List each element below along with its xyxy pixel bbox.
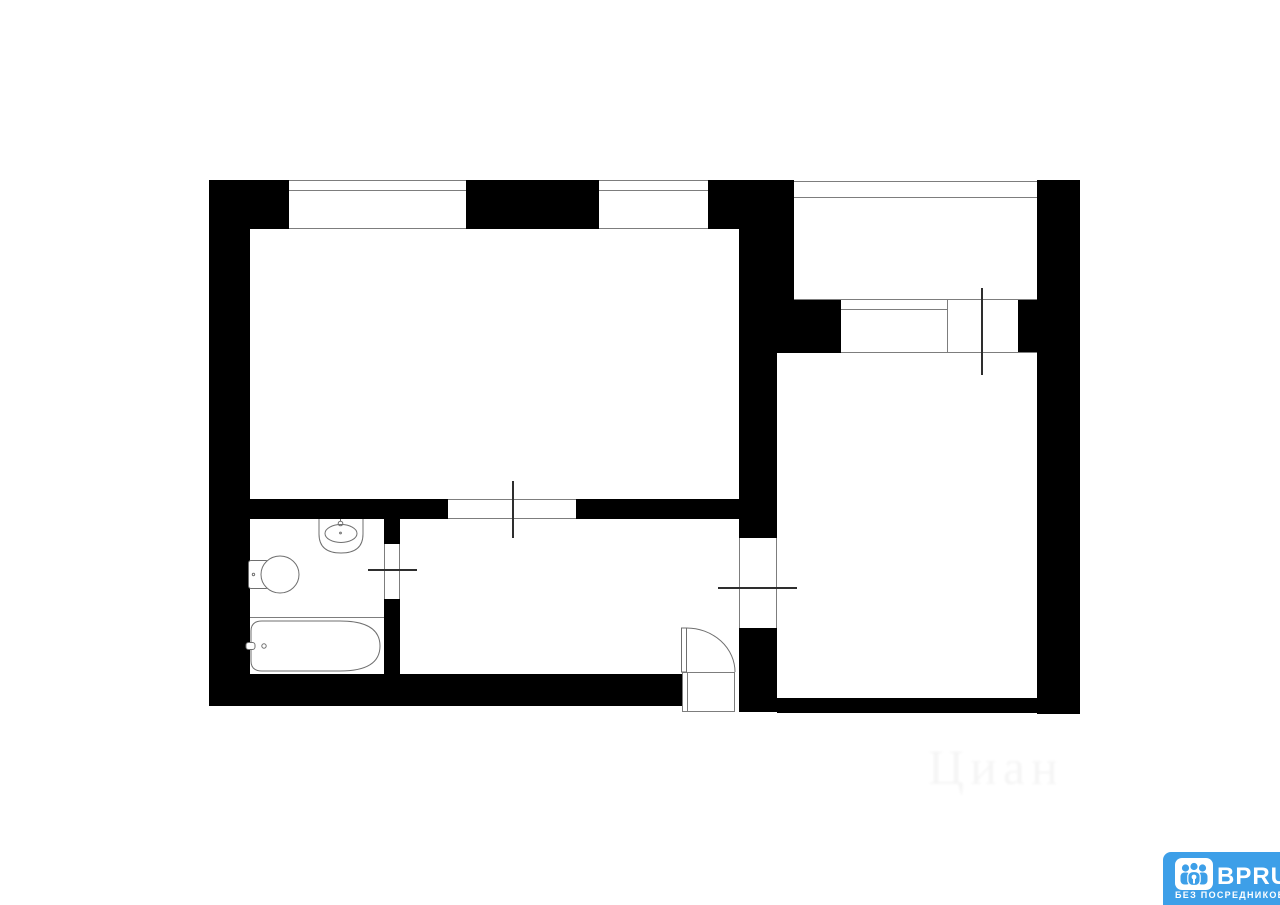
- entrance-door: [682, 628, 736, 672]
- toilet-fixture: [249, 556, 300, 593]
- bathtub-fixture: [246, 621, 380, 671]
- bathtub-faucet-icon: [246, 643, 255, 650]
- bpru-logo-badge: BPRU БЕЗ ПОСРЕДНИКОВ: [1163, 852, 1280, 905]
- door-leaf: [682, 628, 687, 672]
- floor-plan-image: Циан BPRU БЕЗ ПОСРЕДНИКОВ: [0, 0, 1280, 905]
- sink-fixture: [319, 519, 363, 553]
- bpru-tagline-text: БЕЗ ПОСРЕДНИКОВ: [1175, 890, 1280, 900]
- door-swing-arc: [687, 628, 736, 672]
- bpru-brand-text: BPRU: [1217, 863, 1280, 891]
- faint-watermark-text: Циан: [928, 738, 1148, 796]
